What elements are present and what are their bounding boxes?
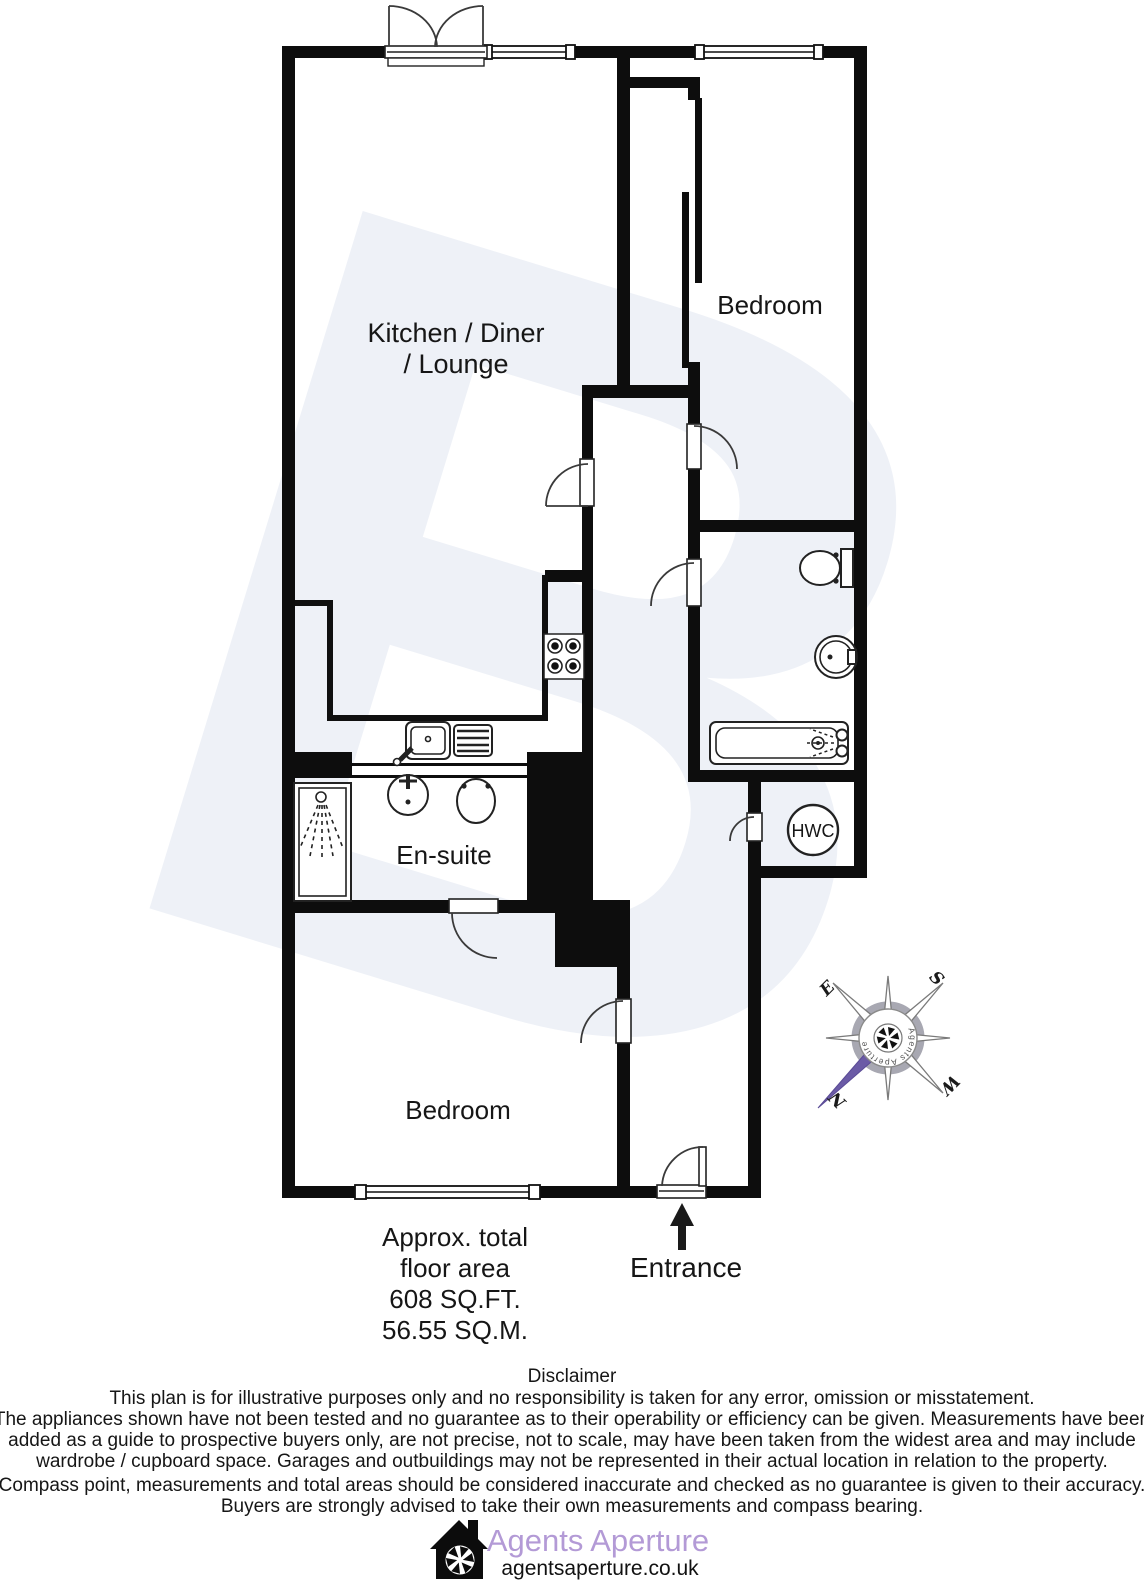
disclaimer-block: Disclaimer This plan is for illustrative… [0,1366,1144,1517]
kitchen-label-line1: Kitchen / Diner [367,318,544,348]
hob-icon [544,634,584,679]
floorplan-canvas: B [0,0,1144,1584]
bathroom-basin-icon [815,636,857,678]
compass-label-s: S [925,967,948,990]
footer-brand: Agents Aperture agentsaperture.co.uk [430,1520,709,1580]
bedroom-bottom-label: Bedroom [405,1095,511,1125]
wall-closet-lintel [628,77,700,88]
ensuite-basin-icon [388,774,428,815]
compass-label-w: W [934,1070,963,1099]
shower-icon [294,783,351,901]
bedroom-top-label: Bedroom [717,290,823,320]
window-bedroom-bottom [355,1185,540,1199]
entrance-label: Entrance [630,1252,742,1283]
wall-right [854,46,867,878]
wardrobe-sliding-door-2 [682,192,689,368]
area-line-1: Approx. total [382,1222,528,1252]
disclaimer-line: Buyers are strongly advised to take thei… [221,1496,923,1517]
ensuite-toilet-icon [457,779,495,823]
wall-hwc-bottom [748,866,867,878]
floor-area-summary: Approx. total floor area 608 SQ.FT. 56.5… [382,1222,528,1345]
compass-label-n: N [824,1086,851,1113]
wall-counter-stub [545,570,593,582]
counter-wall [327,715,548,721]
window-kitchen-top [483,45,575,59]
ensuite-label: En-suite [396,840,491,870]
disclaimer-line: added as a guide to prospective buyers o… [8,1430,1136,1451]
disclaimer-title: Disclaimer [528,1366,617,1387]
agents-aperture-house-logo-icon [430,1520,488,1579]
floorplan-page: B [0,0,1144,1584]
wall-ensuite-band-top [352,763,533,766]
compass-rose: Agents Aperture N E S W [815,967,963,1112]
wall-kitchen-east-upper [617,46,630,398]
area-line-3: 608 SQ.FT. [389,1284,521,1314]
wall-ensuite-top-solid [282,752,352,778]
wall-bathroom-bottom [688,770,867,782]
wall-hall-cap [582,385,700,398]
wall-ensuite-band-bottom [352,775,533,778]
area-line-2: floor area [400,1253,510,1283]
brand-name: Agents Aperture [487,1523,709,1558]
window-bedroom-top [695,45,823,59]
hwc-label: HWC [792,821,835,841]
wall-left [282,46,295,1198]
brand-website: agentsaperture.co.uk [501,1557,699,1580]
area-line-4: 56.55 SQ.M. [382,1315,528,1345]
disclaimer-line: This plan is for illustrative purposes o… [109,1388,1034,1409]
disclaimer-line: wardrobe / cupboard space. Garages and o… [35,1451,1108,1472]
disclaimer-line: Compass point, measurements and total ar… [0,1475,1144,1496]
counter-wall [327,600,333,721]
bathroom-toilet-icon [800,549,853,587]
drainer-icon [454,725,492,756]
wardrobe-sliding-door-1 [695,98,702,283]
wall-bathroom-top [688,520,867,532]
kitchen-label-line2: / Lounge [403,349,508,379]
disclaimer-line: The appliances shown have not been teste… [0,1409,1144,1430]
bath-icon [710,722,848,764]
wall-mass-b [555,913,630,967]
hwc-cylinder-icon: HWC [788,805,838,855]
wall-mass-a [527,752,593,905]
